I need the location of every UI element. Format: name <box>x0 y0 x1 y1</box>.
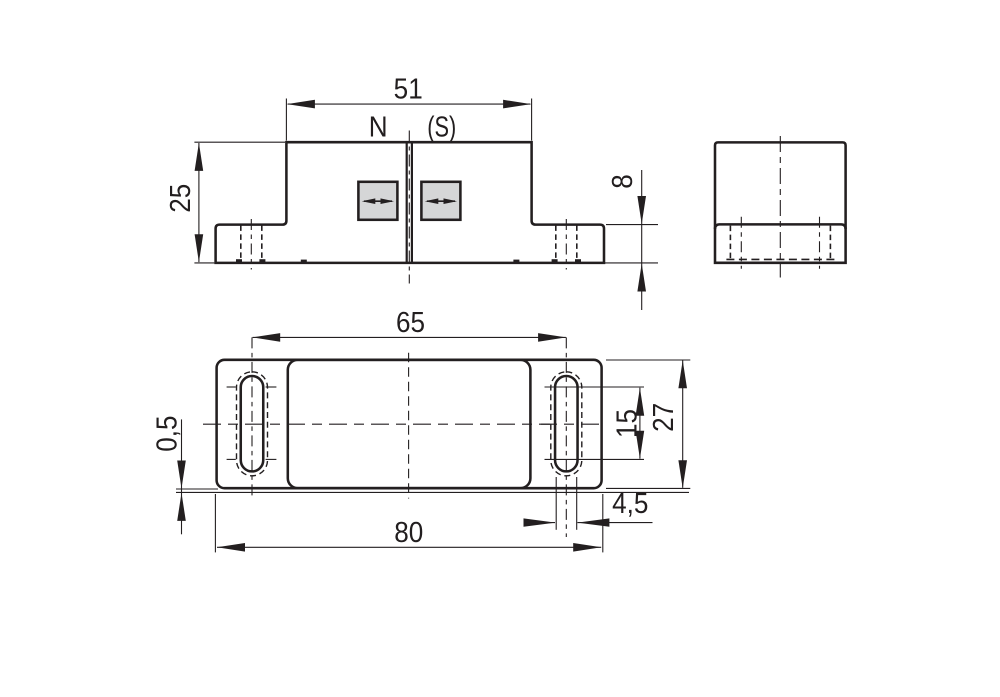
svg-text:4,5: 4,5 <box>612 487 648 520</box>
svg-text:27: 27 <box>647 403 680 432</box>
svg-text:8: 8 <box>606 174 639 189</box>
svg-text:51: 51 <box>394 72 423 105</box>
svg-text:80: 80 <box>394 516 423 549</box>
svg-text:65: 65 <box>396 306 425 339</box>
svg-text:(S): (S) <box>427 112 456 144</box>
svg-text:N: N <box>369 110 388 143</box>
svg-text:15: 15 <box>610 409 643 438</box>
svg-text:25: 25 <box>164 184 197 213</box>
svg-text:0,5: 0,5 <box>150 415 183 451</box>
